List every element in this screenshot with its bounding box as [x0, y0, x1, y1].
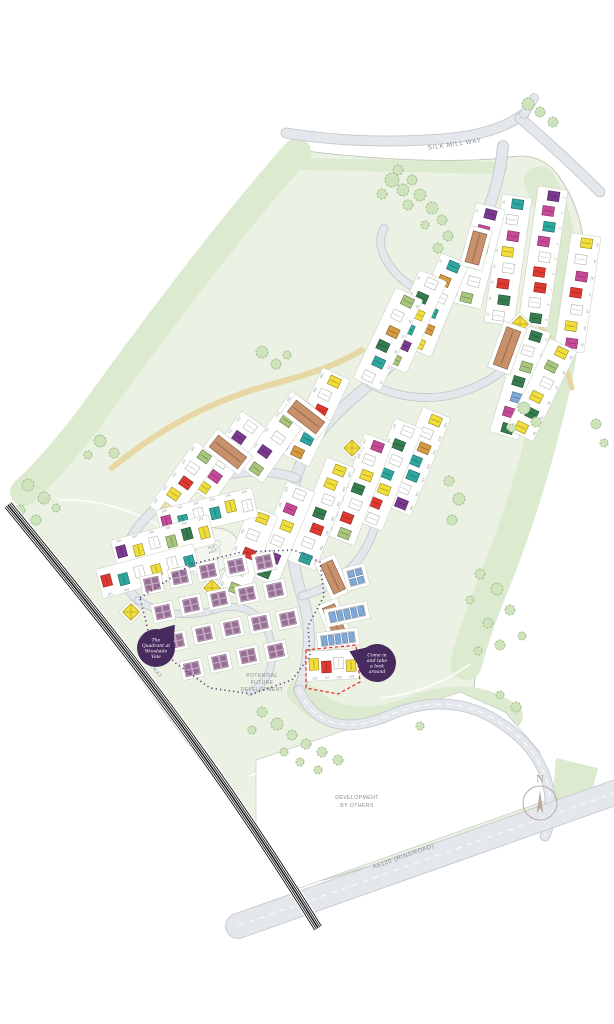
welcome-line2: and take: [367, 658, 387, 664]
site-name-line2: Quadrant at: [142, 643, 170, 649]
dev-by-others-line1: DEVELOPMENT: [335, 795, 379, 801]
site-plan-svg: 1234567891011121314151617313233343536171…: [0, 0, 614, 1024]
tree-icon: [283, 351, 291, 359]
flat-unit: [335, 634, 341, 644]
flat-unit: [321, 636, 327, 646]
tree-icon: [426, 202, 438, 214]
tree-icon: [314, 766, 322, 774]
tree-icon: [591, 419, 601, 429]
plot-number: 236: [312, 676, 318, 680]
tree-icon: [433, 243, 443, 253]
site-name-line3: Woodside: [145, 649, 168, 655]
flat-unit: [350, 578, 357, 586]
tree-icon: [287, 730, 297, 740]
tree-icon: [94, 435, 106, 447]
tree-icon: [248, 726, 256, 734]
tree-icon: [317, 747, 327, 757]
compass-n-label: N: [536, 773, 544, 785]
dev-by-others-line2: BY OTHERS: [340, 803, 374, 809]
tree-icon: [475, 569, 485, 579]
tree-icon: [84, 451, 92, 459]
tree-icon: [444, 476, 454, 486]
tree-icon: [393, 165, 403, 175]
tree-icon: [443, 231, 453, 241]
tree-icon: [505, 605, 515, 615]
plot-number: 239: [349, 674, 355, 678]
plot-number: 238: [337, 675, 343, 679]
flat-unit: [355, 568, 362, 576]
tree-icon: [518, 402, 530, 414]
tree-icon: [414, 189, 426, 201]
welcome-line3: a look: [370, 664, 384, 670]
tree-icon: [474, 647, 482, 655]
potential-future-line3: DEVELOPMENT: [241, 687, 283, 693]
site-name-line1: The: [152, 638, 161, 644]
tree-icon: [600, 439, 608, 447]
site-plan: 1234567891011121314151617313233343536171…: [0, 0, 614, 1024]
tree-icon: [437, 215, 447, 225]
tree-icon: [377, 189, 387, 199]
tree-icon: [280, 748, 288, 756]
tree-icon: [22, 479, 34, 491]
tree-icon: [271, 359, 281, 369]
tree-icon: [496, 691, 504, 699]
tree-icon: [407, 175, 417, 185]
tree-icon: [31, 515, 41, 525]
flat-unit: [348, 632, 354, 642]
plot-number: 237: [324, 676, 330, 680]
tree-icon: [296, 758, 304, 766]
tree-icon: [52, 504, 60, 512]
potential-future-line1: POTENTIAL: [246, 673, 277, 679]
tree-icon: [38, 492, 50, 504]
tree-icon: [535, 107, 545, 117]
tree-icon: [256, 346, 268, 358]
tree-icon: [416, 722, 424, 730]
potential-future-line2: FUTURE: [251, 680, 274, 686]
flat-unit: [348, 570, 355, 578]
tree-icon: [421, 221, 429, 229]
tree-icon: [548, 117, 558, 127]
tree-icon: [453, 493, 465, 505]
tree-icon: [491, 583, 503, 595]
tree-icon: [271, 718, 283, 730]
tree-icon: [511, 702, 521, 712]
tree-icon: [518, 632, 526, 640]
flat-unit: [328, 635, 334, 645]
site-name-line4: Vale: [151, 654, 161, 660]
tree-icon: [531, 417, 541, 427]
tree-icon: [466, 596, 474, 604]
silk-mill-way: [286, 114, 524, 141]
tree-icon: [483, 618, 493, 628]
tree-icon: [257, 707, 267, 717]
welcome-line4: around: [369, 669, 386, 675]
tree-icon: [508, 424, 516, 432]
flat-unit: [357, 576, 364, 584]
tree-icon: [301, 739, 311, 749]
tree-icon: [447, 515, 457, 525]
tree-icon: [495, 640, 505, 650]
tree-icon: [522, 98, 534, 110]
tree-icon: [397, 184, 409, 196]
tree-icon: [333, 755, 343, 765]
welcome-line1: Come in: [367, 653, 386, 659]
tree-icon: [109, 448, 119, 458]
tree-icon: [403, 200, 413, 210]
flat-unit: [342, 633, 348, 643]
